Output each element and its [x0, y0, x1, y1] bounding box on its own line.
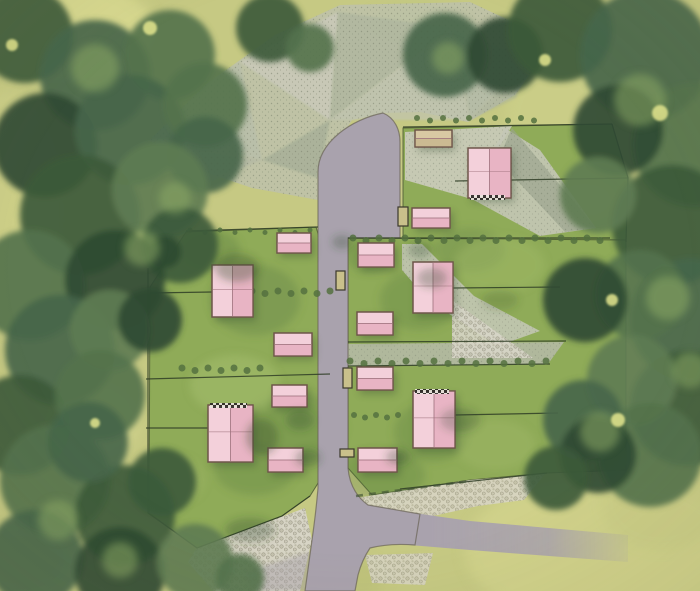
site-plan-illustration: [0, 0, 700, 591]
vignette-overlay: [0, 0, 700, 591]
site-plan-canvas: [0, 0, 700, 591]
